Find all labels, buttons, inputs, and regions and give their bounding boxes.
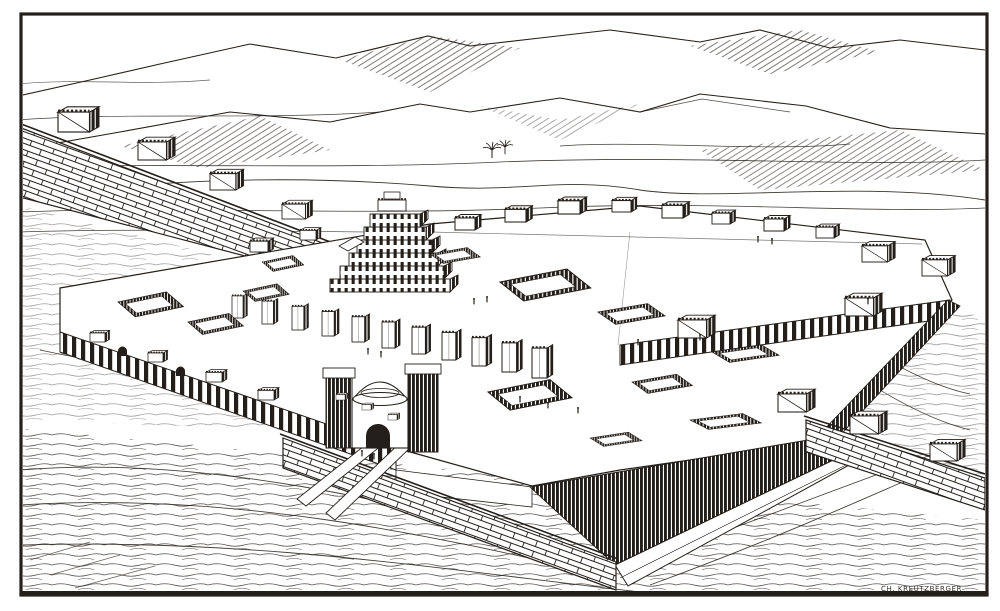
- engraving: CH. KREUTZBERGER: [0, 0, 1000, 611]
- engraving-canvas: CH. KREUTZBERGER: [0, 0, 1000, 611]
